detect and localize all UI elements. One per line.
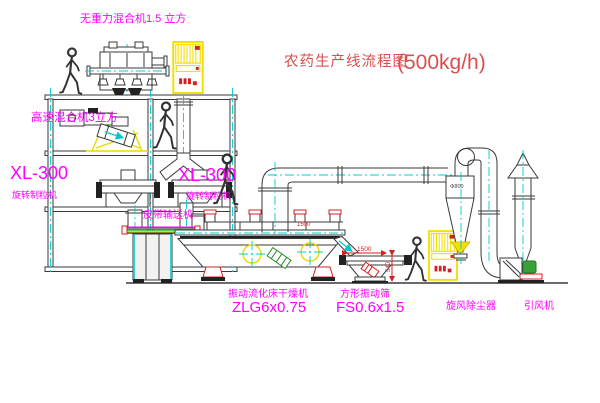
person-figure-floor2 xyxy=(154,103,176,149)
diagram-title: 农药生产线流程图 xyxy=(284,53,408,70)
gravity-free-mixer xyxy=(85,42,170,96)
belt-roller-left xyxy=(122,226,127,234)
label-fan: 引风机 xyxy=(524,299,554,312)
dryer-foot-right xyxy=(313,267,333,277)
dim-screen-height: 540 xyxy=(386,261,392,272)
label-belt-conveyor: 皮带输送机 xyxy=(143,208,193,221)
exhaust-duct xyxy=(258,162,452,234)
cad-flow-diagram: 农药生产线流程图 (500kg/h) 无重力混合机1.5 立方 高速混合机3立方… xyxy=(0,0,600,403)
fan-motor xyxy=(523,261,536,273)
dim-cyclone-diameter: Φ800 xyxy=(450,184,464,190)
dim-dryer-length: 1500 xyxy=(297,222,311,228)
side-pipe xyxy=(152,58,164,65)
label-high-speed-mixer: 高速混合机3立方 xyxy=(31,110,118,124)
diagram-capacity: (500kg/h) xyxy=(397,51,486,74)
control-cabinet-ground xyxy=(429,231,457,280)
label-xl300-left: XL-300 xyxy=(10,163,68,183)
label-dryer-model: ZLG6x0.75 xyxy=(232,299,306,316)
tilted-drum xyxy=(97,124,135,147)
label-granulator-left: 旋转制粒机 xyxy=(12,189,57,200)
control-cabinet-top xyxy=(173,42,202,93)
induced-draft-fan xyxy=(498,258,544,283)
conveyor-support xyxy=(133,234,172,280)
dryer-foot-left xyxy=(203,267,223,277)
vibrating-screen xyxy=(339,253,412,283)
drawing-surface: 农药生产线流程图 (500kg/h) 无重力混合机1.5 立方 高速混合机3立方… xyxy=(0,0,600,403)
label-cyclone: 旋风除尘器 xyxy=(446,299,496,312)
floor-slab-1 xyxy=(45,95,237,100)
fan-base xyxy=(520,274,542,279)
label-screen-model: FS0.6x1.5 xyxy=(336,299,404,316)
person-figure-floor1 xyxy=(60,48,81,93)
dim-screen-length: 1500 xyxy=(357,246,372,253)
label-gravity-mixer: 无重力混合机1.5 立方 xyxy=(80,11,186,25)
label-xl300-right: XL-300 xyxy=(178,165,236,185)
label-granulator-right: 旋转制粒机 xyxy=(186,190,231,201)
